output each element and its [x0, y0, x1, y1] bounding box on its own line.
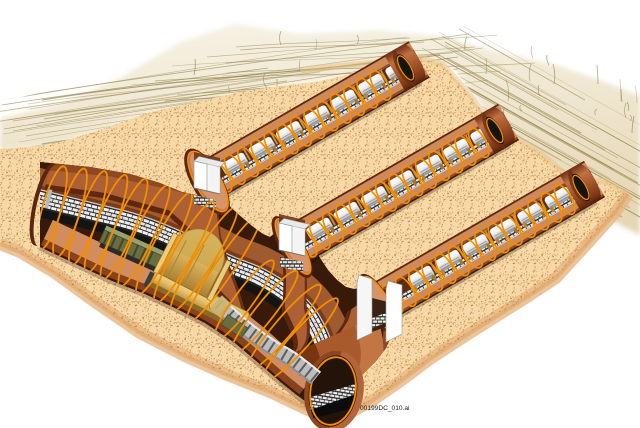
svg-text:00199DC_010.ai: 00199DC_010.ai	[360, 405, 410, 412]
